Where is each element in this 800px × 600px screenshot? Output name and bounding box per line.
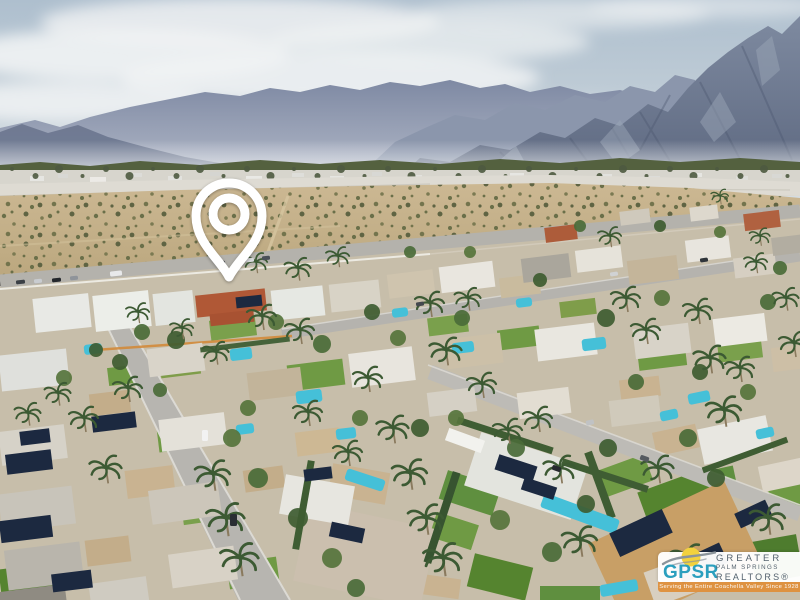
tree bbox=[692, 364, 708, 380]
org-line-greater: GREATER bbox=[716, 554, 790, 564]
tree bbox=[760, 294, 776, 310]
gravel-yard bbox=[85, 535, 132, 566]
tree bbox=[454, 310, 470, 326]
tree bbox=[654, 220, 666, 232]
tree bbox=[628, 374, 644, 390]
tree bbox=[89, 343, 103, 357]
gpsr-logo-box: GPSR GREATER PALM SPRINGS REALTORS® bbox=[658, 552, 800, 582]
tree bbox=[313, 335, 331, 353]
tree bbox=[337, 165, 345, 173]
city-building bbox=[772, 174, 782, 178]
tree bbox=[153, 383, 167, 397]
tree bbox=[619, 165, 627, 173]
org-line-palm-springs: PALM SPRINGS bbox=[716, 565, 790, 571]
tree bbox=[773, 261, 787, 275]
tree bbox=[574, 220, 586, 232]
city-building bbox=[372, 172, 382, 176]
house-roof bbox=[32, 293, 91, 333]
gpsr-watermark: GPSR GREATER PALM SPRINGS REALTORS® Serv… bbox=[658, 552, 800, 592]
tree bbox=[738, 173, 744, 179]
tree bbox=[292, 167, 296, 171]
tree bbox=[574, 167, 578, 171]
tree bbox=[526, 166, 532, 172]
tree bbox=[577, 495, 595, 513]
tree bbox=[81, 174, 85, 178]
car bbox=[230, 514, 237, 526]
tree bbox=[760, 165, 768, 173]
tree bbox=[126, 172, 134, 180]
tree bbox=[597, 309, 615, 327]
tree bbox=[103, 166, 109, 172]
tree bbox=[740, 384, 756, 400]
city-building bbox=[292, 173, 304, 177]
tree bbox=[599, 439, 617, 457]
aerial-scene bbox=[0, 0, 800, 600]
tree bbox=[715, 167, 719, 171]
tree bbox=[244, 166, 250, 172]
tree bbox=[222, 174, 226, 178]
tree bbox=[196, 165, 204, 173]
tree bbox=[248, 468, 268, 488]
car bbox=[202, 430, 208, 441]
tree bbox=[714, 226, 726, 238]
gpsr-tagline: Serving the Entire Coachella Valley Sinc… bbox=[658, 582, 800, 592]
tree bbox=[240, 400, 256, 416]
tree bbox=[223, 429, 241, 447]
tree bbox=[347, 579, 365, 597]
tree bbox=[433, 167, 437, 171]
tree bbox=[542, 542, 562, 562]
city-building bbox=[90, 177, 106, 182]
tree bbox=[478, 165, 486, 173]
tree bbox=[10, 167, 14, 171]
tree bbox=[667, 166, 673, 172]
tree bbox=[112, 354, 128, 370]
tree bbox=[679, 429, 697, 447]
tree bbox=[385, 166, 391, 172]
tree bbox=[707, 469, 725, 487]
org-line-realtors: REALTORS® bbox=[716, 573, 790, 582]
tree bbox=[134, 324, 150, 340]
city-building bbox=[58, 174, 68, 178]
tree bbox=[490, 510, 510, 530]
tree bbox=[55, 165, 63, 173]
tree bbox=[364, 304, 380, 320]
gpsr-org-name: GREATER PALM SPRINGS REALTORS® bbox=[716, 554, 790, 582]
tree bbox=[448, 410, 464, 426]
aerial-photo: GPSR GREATER PALM SPRINGS REALTORS® Serv… bbox=[0, 0, 800, 600]
lawn bbox=[540, 586, 600, 600]
tree bbox=[352, 410, 368, 426]
tree bbox=[404, 246, 416, 258]
tree bbox=[654, 290, 670, 306]
tree bbox=[411, 419, 429, 437]
gpsr-acronym: GPSR bbox=[663, 563, 719, 582]
tree bbox=[174, 173, 180, 179]
house-roof bbox=[771, 344, 800, 372]
tree bbox=[390, 330, 406, 346]
tree bbox=[533, 273, 547, 287]
house-roof bbox=[152, 290, 195, 326]
city-building bbox=[210, 172, 220, 176]
tree bbox=[33, 173, 39, 179]
tree bbox=[151, 167, 155, 171]
tree bbox=[464, 246, 476, 258]
tree bbox=[786, 174, 790, 178]
tree bbox=[288, 508, 308, 528]
tree bbox=[322, 548, 342, 568]
